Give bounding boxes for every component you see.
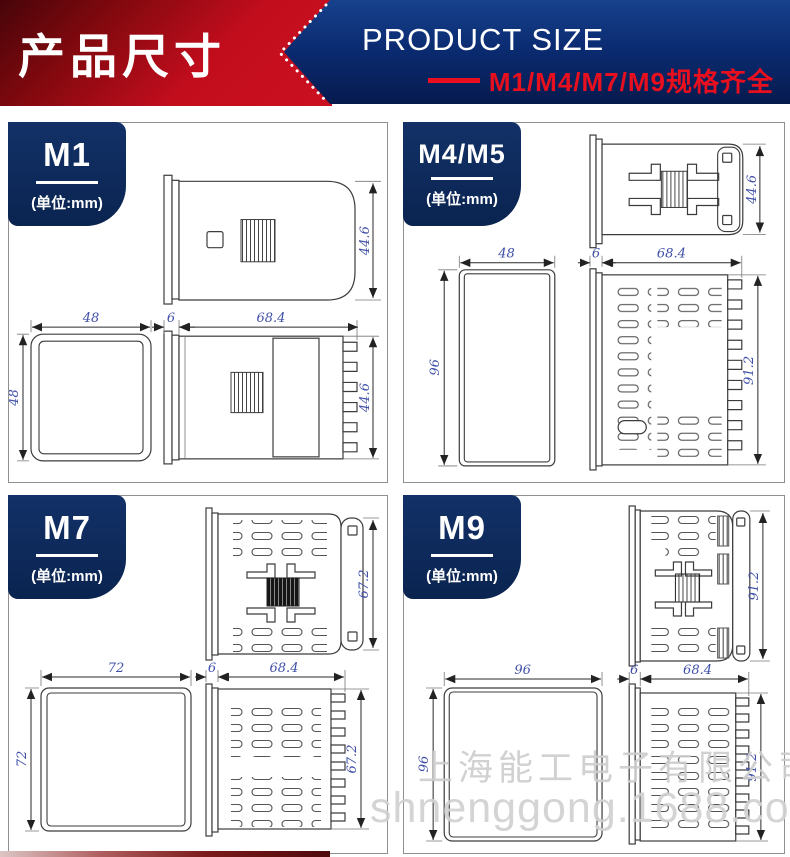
dim-label: 6 — [592, 247, 600, 262]
size-badge-m7: M7 (单位:mm) — [8, 495, 126, 599]
badge-label: M9 — [438, 509, 486, 547]
dim-label: 96 — [417, 756, 432, 773]
panel-m1: M1 (单位:mm) 44.6 48 — [8, 122, 388, 483]
dim-label: 48 — [82, 311, 100, 326]
badge-unit: (单位:mm) — [31, 565, 103, 586]
dim-label: 68.4 — [657, 247, 686, 262]
dim-label: 67.2 — [345, 745, 360, 774]
badge-label: M7 — [43, 509, 91, 547]
panel-m4m5: M4/M5 (单位:mm) 44.6 — [403, 122, 785, 483]
badge-divider — [431, 554, 493, 557]
page-title: 产品尺寸 — [18, 18, 226, 87]
dim-label: 68.4 — [683, 663, 712, 678]
badge-unit: (单位:mm) — [426, 188, 498, 209]
product-size-sheet: 产品尺寸 PRODUCT SIZE M1/M4/M7/M9规格齐全 M1 (单位… — [0, 0, 790, 857]
header-subtitle-row: M1/M4/M7/M9规格齐全 — [428, 62, 774, 99]
dim-label: 48 — [497, 247, 515, 262]
dim-label: 96 — [428, 359, 443, 376]
badge-divider — [36, 554, 98, 557]
size-badge-m9: M9 (单位:mm) — [403, 495, 521, 599]
dim-label: 96 — [514, 663, 531, 678]
panel-m9: M9 (单位:mm) — [403, 495, 785, 854]
dim-label: 6 — [208, 661, 216, 676]
dim-label: 91.2 — [742, 356, 757, 385]
chevron-dotted-line — [266, 0, 346, 106]
dim-label: 72 — [108, 661, 125, 676]
badge-divider — [431, 177, 493, 180]
page-title-en: PRODUCT SIZE — [362, 22, 604, 58]
badge-label: M4/M5 — [418, 139, 506, 170]
panel-m7: M7 (单位:mm) — [8, 495, 388, 854]
dim-label: 44.6 — [358, 226, 373, 256]
dim-label: 91.2 — [745, 753, 760, 782]
subtitle-text: M1/M4/M7/M9规格齐全 — [489, 62, 774, 99]
badge-divider — [36, 181, 98, 184]
next-section-strip — [0, 851, 330, 857]
dim-label: 68.4 — [270, 661, 299, 676]
dim-label: 44.6 — [358, 383, 373, 413]
size-badge-m1: M1 (单位:mm) — [8, 122, 126, 226]
badge-unit: (单位:mm) — [426, 565, 498, 586]
dim-label: 91.2 — [747, 572, 762, 601]
dim-label: 48 — [9, 389, 22, 407]
dim-label: 68.4 — [257, 311, 286, 326]
size-badge-m4m5: M4/M5 (单位:mm) — [403, 122, 521, 226]
header-banner: 产品尺寸 PRODUCT SIZE M1/M4/M7/M9规格齐全 — [0, 0, 790, 108]
dim-label: 6 — [167, 311, 175, 326]
dim-label: 72 — [15, 751, 30, 768]
badge-label: M1 — [43, 136, 91, 174]
badge-unit: (单位:mm) — [31, 192, 103, 213]
dim-label: 6 — [630, 663, 638, 678]
subtitle-dash — [428, 78, 480, 83]
dim-label: 44.6 — [745, 175, 760, 205]
dim-label: 67.2 — [357, 570, 372, 599]
